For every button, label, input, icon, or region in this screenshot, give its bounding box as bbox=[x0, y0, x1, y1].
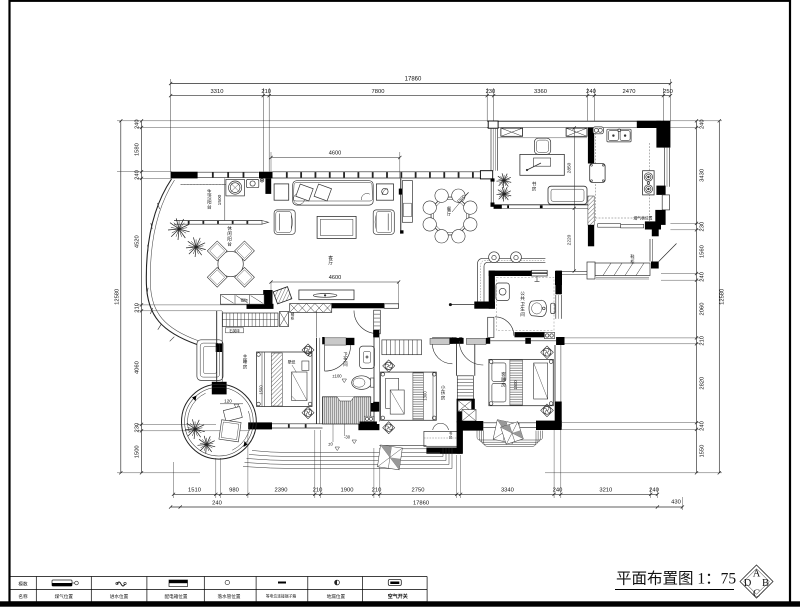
svg-text:±100: ±100 bbox=[332, 374, 342, 379]
svg-text:2470: 2470 bbox=[623, 89, 636, 95]
svg-text:240: 240 bbox=[135, 119, 141, 129]
svg-text:17860: 17860 bbox=[405, 77, 422, 83]
svg-text:240: 240 bbox=[700, 119, 706, 129]
svg-text:地漏位置: 地漏位置 bbox=[327, 593, 346, 600]
svg-text:D: D bbox=[744, 578, 752, 589]
svg-text:-30: -30 bbox=[344, 435, 351, 440]
svg-text:煤气表位置: 煤气表位置 bbox=[634, 216, 653, 221]
svg-text:进水位置: 进水位置 bbox=[110, 593, 129, 600]
svg-text:240: 240 bbox=[700, 421, 706, 431]
svg-text:书台: 书台 bbox=[449, 431, 453, 440]
svg-text:A: A bbox=[753, 569, 761, 580]
svg-text:卫生间: 卫生间 bbox=[343, 352, 348, 368]
svg-text:B: B bbox=[762, 578, 769, 589]
svg-text:储物: 储物 bbox=[241, 298, 248, 303]
svg-text:3210: 3210 bbox=[599, 488, 612, 494]
svg-text:2220: 2220 bbox=[566, 234, 572, 245]
svg-text:1500: 1500 bbox=[135, 445, 141, 458]
svg-text:980: 980 bbox=[229, 488, 239, 494]
svg-text:1580: 1580 bbox=[135, 143, 141, 156]
svg-text:12580: 12580 bbox=[115, 289, 121, 305]
svg-text:煤气位置: 煤气位置 bbox=[55, 593, 74, 600]
svg-text:1550: 1550 bbox=[700, 445, 706, 458]
svg-text:230: 230 bbox=[700, 222, 706, 232]
svg-text:2060: 2060 bbox=[700, 303, 706, 316]
svg-text:2850: 2850 bbox=[566, 162, 572, 173]
svg-text:210: 210 bbox=[135, 303, 141, 313]
svg-text:17860: 17860 bbox=[413, 501, 429, 507]
svg-text:主睡房: 主睡房 bbox=[243, 353, 248, 370]
svg-text:空气开关: 空气开关 bbox=[388, 593, 408, 600]
svg-text:落水管位置: 落水管位置 bbox=[218, 593, 241, 600]
svg-text:1500: 1500 bbox=[513, 380, 518, 390]
svg-text:4060: 4060 bbox=[135, 361, 141, 374]
svg-text:等电位连接端子箱: 等电位连接端子箱 bbox=[266, 594, 297, 599]
svg-text:240: 240 bbox=[135, 170, 141, 180]
svg-text:1900: 1900 bbox=[341, 488, 354, 494]
svg-text:公共卫生间: 公共卫生间 bbox=[520, 291, 525, 318]
svg-text:名称: 名称 bbox=[18, 593, 28, 600]
svg-text:3310: 3310 bbox=[211, 89, 224, 95]
svg-text:休闲阳台: 休闲阳台 bbox=[227, 225, 232, 248]
svg-text:客厅: 客厅 bbox=[328, 255, 333, 266]
svg-text:430: 430 bbox=[671, 500, 681, 506]
svg-text:2750: 2750 bbox=[412, 488, 425, 494]
svg-text:平面布置图 1：75: 平面布置图 1：75 bbox=[616, 570, 736, 588]
svg-text:1300: 1300 bbox=[423, 391, 428, 401]
svg-text:石英砖: 石英砖 bbox=[229, 328, 240, 333]
svg-text:230: 230 bbox=[486, 89, 496, 95]
svg-text:250: 250 bbox=[663, 89, 673, 95]
svg-text:1510: 1510 bbox=[188, 488, 201, 494]
svg-text:餐厅: 餐厅 bbox=[447, 206, 452, 217]
svg-text:客睡房: 客睡房 bbox=[501, 371, 506, 388]
svg-text:4520: 4520 bbox=[135, 235, 141, 248]
svg-text:2390: 2390 bbox=[275, 488, 288, 494]
svg-text:210: 210 bbox=[261, 89, 271, 95]
svg-text:矮柜: 矮柜 bbox=[291, 312, 295, 321]
svg-text:12580: 12580 bbox=[720, 289, 726, 305]
svg-text:模数: 模数 bbox=[18, 581, 28, 588]
svg-text:配电箱位置: 配电箱位置 bbox=[165, 593, 188, 600]
svg-text:4600: 4600 bbox=[329, 151, 341, 157]
svg-text:1500: 1500 bbox=[217, 194, 223, 205]
svg-text:1500: 1500 bbox=[259, 385, 264, 395]
svg-text:3340: 3340 bbox=[501, 488, 514, 494]
svg-text:3360: 3360 bbox=[534, 89, 547, 95]
svg-text:小孩房: 小孩房 bbox=[441, 384, 446, 401]
svg-text:240: 240 bbox=[700, 272, 706, 282]
svg-text:壁纸: 壁纸 bbox=[288, 360, 296, 365]
svg-text:120: 120 bbox=[224, 399, 232, 404]
svg-text:±0: ±0 bbox=[328, 442, 333, 447]
svg-text:210: 210 bbox=[700, 336, 706, 346]
svg-text:生活阳台: 生活阳台 bbox=[207, 188, 212, 211]
svg-text:7800: 7800 bbox=[372, 89, 385, 95]
svg-text:3430: 3430 bbox=[700, 169, 706, 182]
svg-text:书房: 书房 bbox=[532, 181, 537, 193]
svg-text:230: 230 bbox=[135, 423, 141, 433]
svg-text:240: 240 bbox=[212, 501, 222, 507]
svg-text:1560: 1560 bbox=[700, 245, 706, 258]
svg-text:C: C bbox=[753, 589, 760, 600]
svg-text:2820: 2820 bbox=[700, 377, 706, 390]
svg-text:4600: 4600 bbox=[329, 275, 341, 281]
svg-text:240: 240 bbox=[586, 89, 596, 95]
